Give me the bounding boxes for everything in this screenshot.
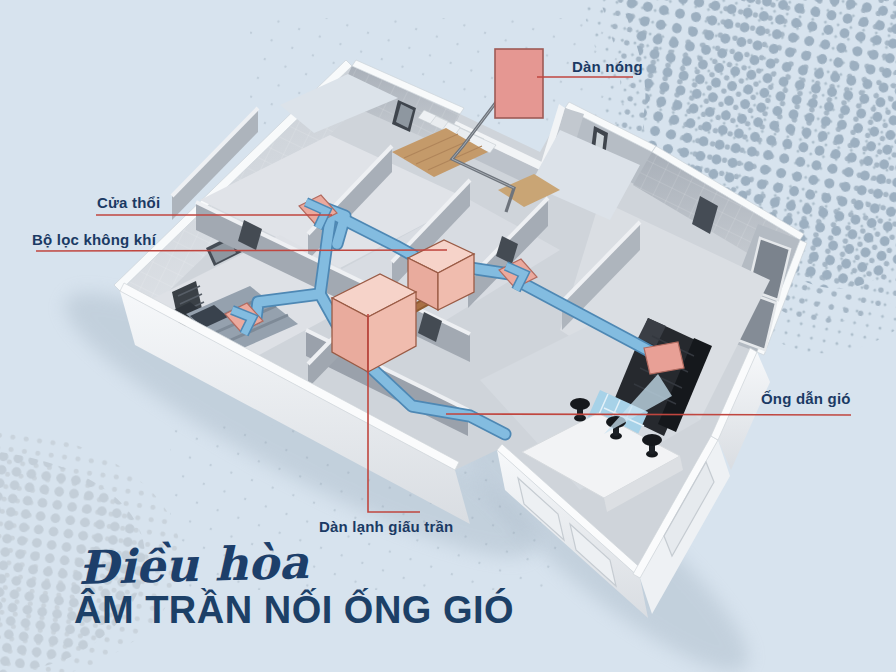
label-outdoor-unit: Dàn nóng [572, 58, 643, 75]
leader-air-filter [36, 250, 447, 251]
label-air-outlet: Cửa thổi [97, 194, 160, 211]
label-air-duct: Ống dẫn gió [761, 390, 851, 407]
label-concealed-unit: Dàn lạnh giấu trần [319, 518, 453, 535]
leader-air-duct [446, 414, 851, 415]
outdoor-unit [495, 49, 543, 118]
title-main-line: ÂM TRẦN NỐI ỐNG GIÓ [74, 589, 514, 632]
label-air-filter: Bộ lọc không khí [32, 231, 156, 248]
title-script-line: Điều hòa [77, 535, 309, 595]
infographic-canvas: Dàn nóng Cửa thổi Bộ lọc không khí Ống d… [0, 0, 896, 672]
